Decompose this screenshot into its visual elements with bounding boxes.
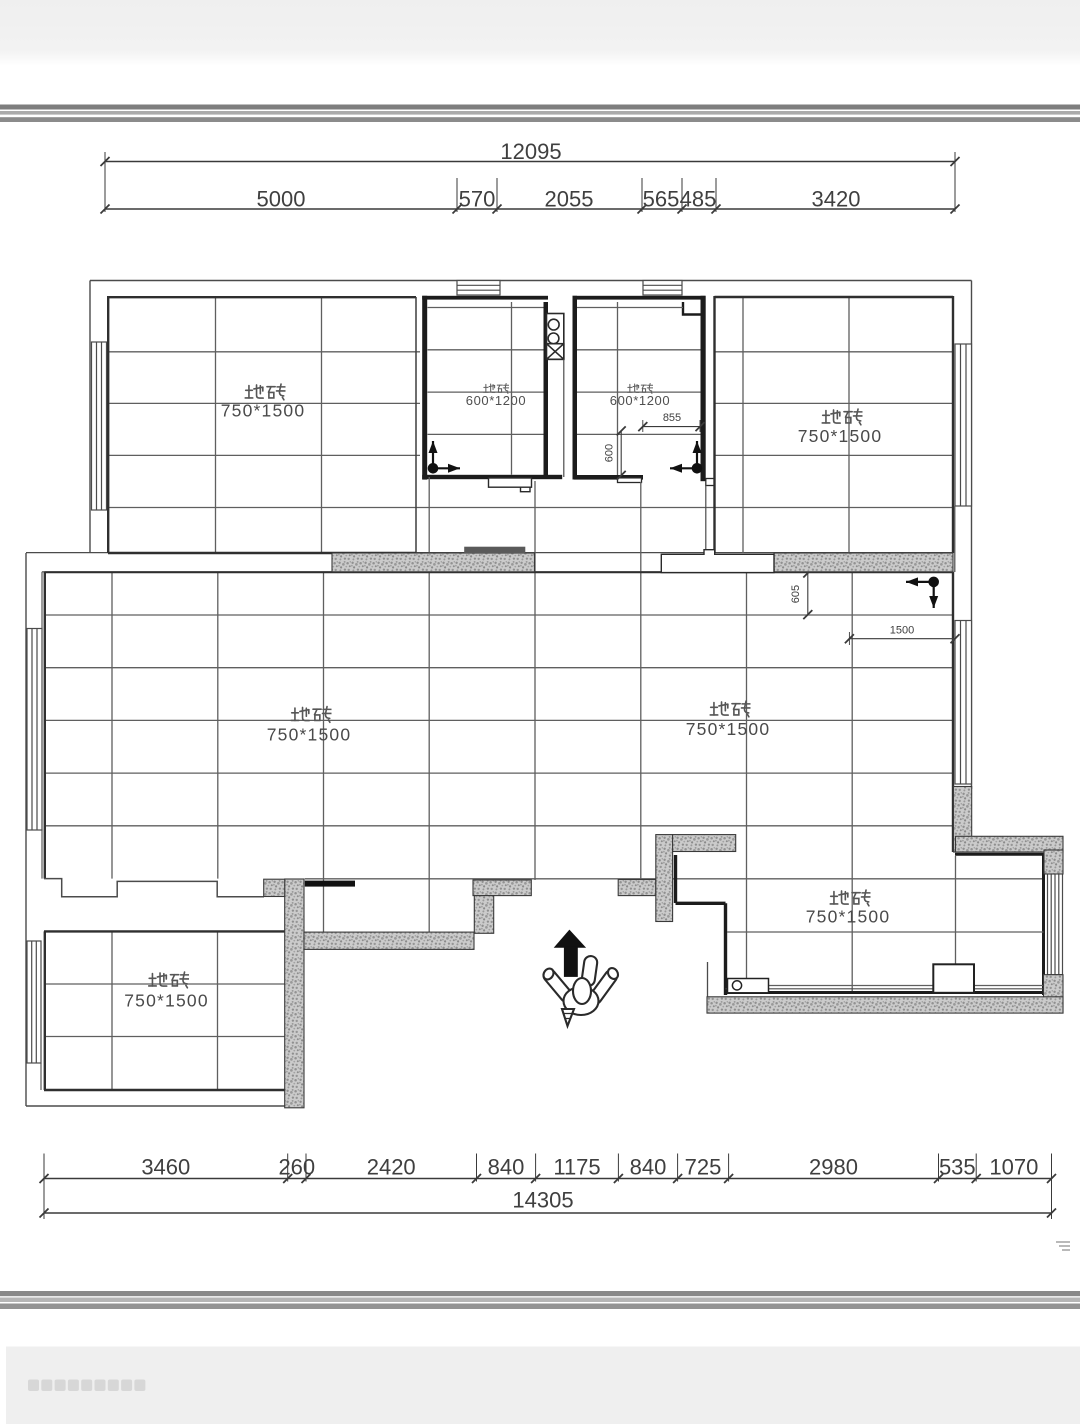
- svg-text:260: 260: [278, 1155, 315, 1180]
- svg-text:485: 485: [680, 187, 717, 212]
- svg-text:605: 605: [790, 585, 802, 603]
- svg-text:750*1500: 750*1500: [221, 401, 306, 421]
- svg-text:750*1500: 750*1500: [267, 725, 352, 745]
- svg-text:855: 855: [663, 412, 681, 424]
- svg-text:2980: 2980: [809, 1155, 858, 1180]
- svg-text:565: 565: [643, 187, 680, 212]
- svg-text:840: 840: [488, 1155, 525, 1180]
- svg-text:600*1200: 600*1200: [610, 393, 670, 408]
- svg-text:725: 725: [685, 1155, 722, 1180]
- svg-text:3460: 3460: [141, 1155, 190, 1180]
- svg-text:750*1500: 750*1500: [798, 426, 883, 446]
- svg-text:535: 535: [939, 1155, 976, 1180]
- svg-text:12095: 12095: [500, 139, 561, 164]
- svg-text:1070: 1070: [989, 1155, 1038, 1180]
- svg-text:600*1200: 600*1200: [466, 393, 526, 408]
- svg-text:750*1500: 750*1500: [124, 991, 209, 1011]
- svg-text:3420: 3420: [812, 187, 861, 212]
- svg-text:570: 570: [459, 187, 496, 212]
- svg-text:5000: 5000: [257, 187, 306, 212]
- svg-text:2420: 2420: [367, 1155, 416, 1180]
- svg-text:750*1500: 750*1500: [686, 719, 771, 739]
- svg-text:14305: 14305: [512, 1188, 573, 1213]
- svg-text:600: 600: [604, 444, 616, 462]
- svg-text:840: 840: [630, 1155, 667, 1180]
- svg-text:2055: 2055: [545, 187, 594, 212]
- svg-text:1175: 1175: [553, 1155, 600, 1180]
- svg-text:750*1500: 750*1500: [806, 907, 891, 927]
- svg-text:1500: 1500: [890, 625, 914, 637]
